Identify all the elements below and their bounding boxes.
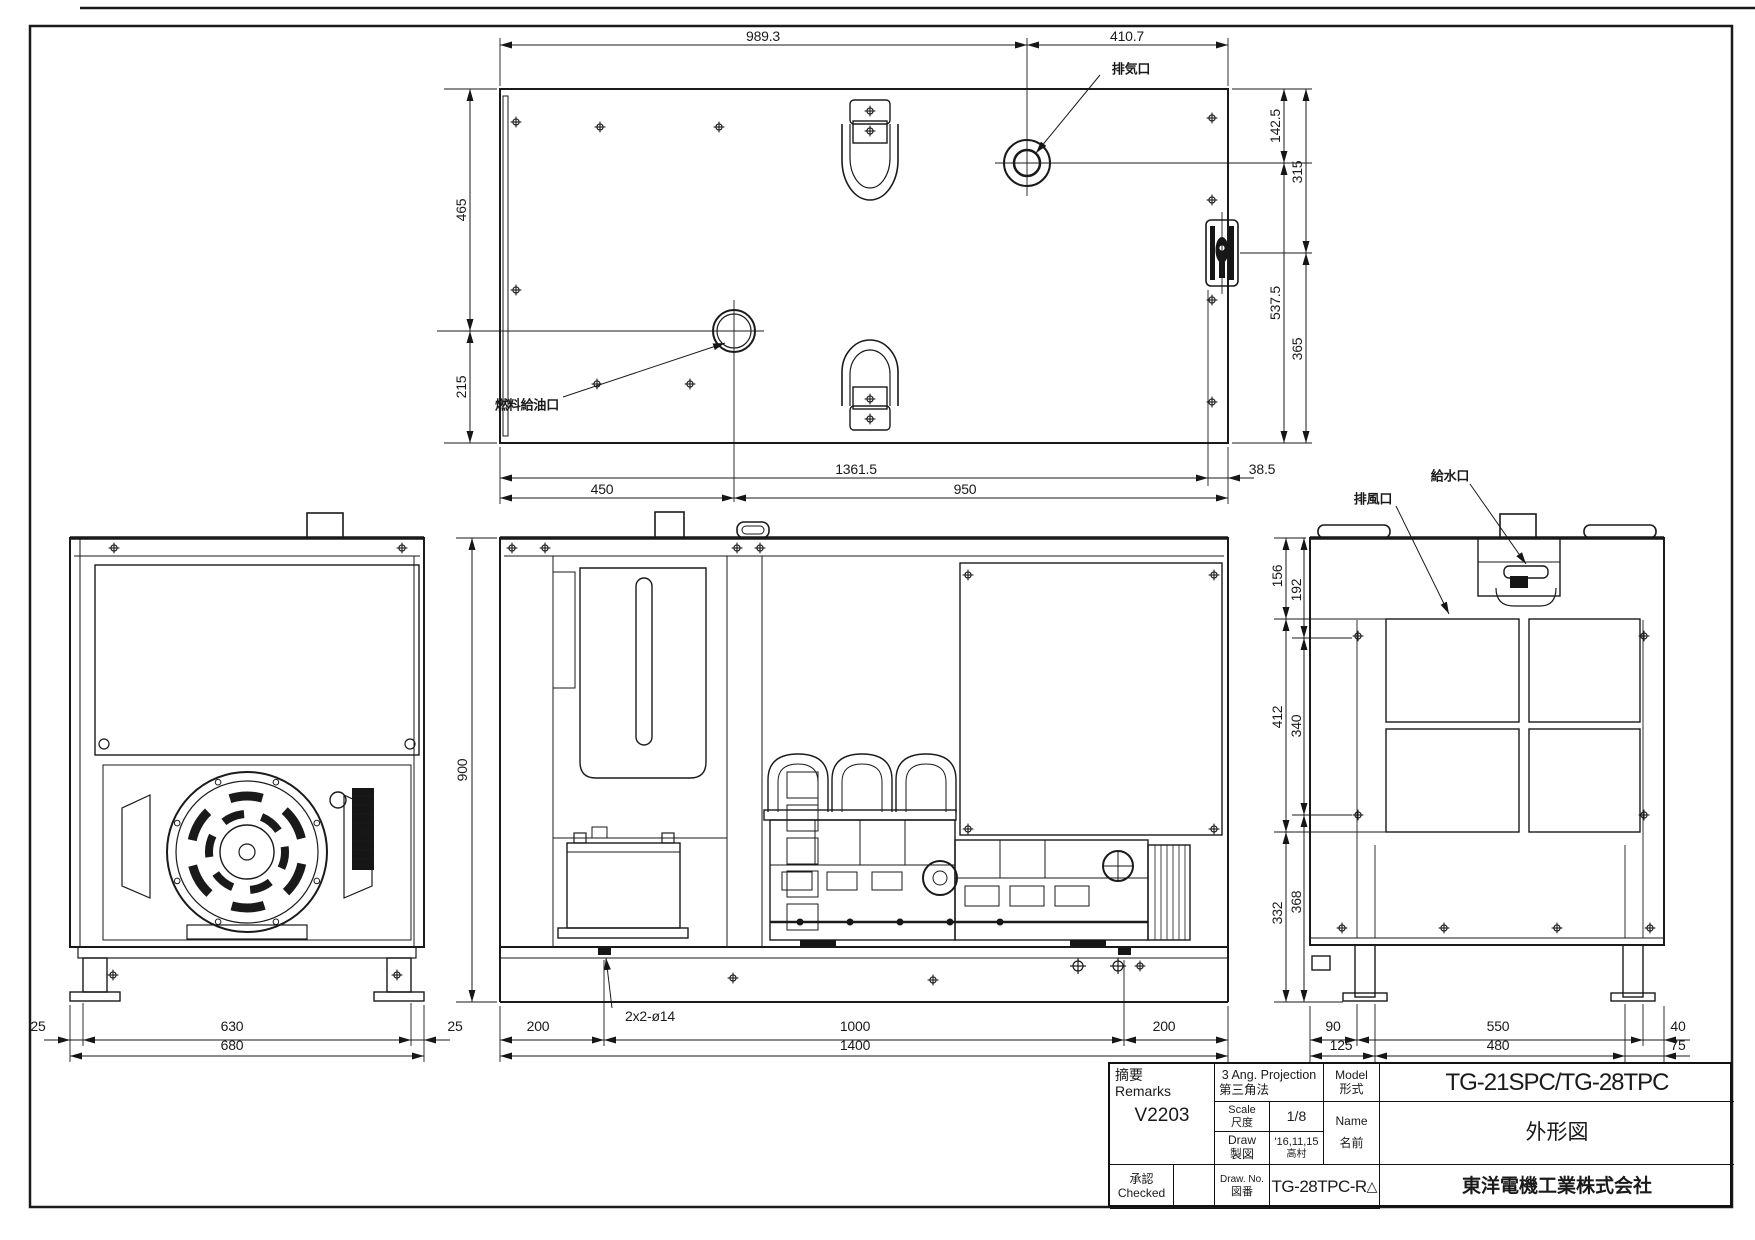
checked-label-en: Checked: [1118, 1187, 1165, 1201]
dim-front-25l: 25: [30, 1018, 45, 1034]
fuel-fill-port: [437, 300, 764, 502]
title-remarks-cell: 摘要 Remarks V2203: [1110, 1064, 1215, 1165]
dim-plan-450: 450: [591, 481, 614, 497]
dim-plan-1361: 1361.5: [835, 461, 877, 477]
name-label-en: Name: [1335, 1115, 1367, 1129]
drawno-label-jp: 図番: [1231, 1186, 1253, 1199]
title-blank-cell: [1174, 1165, 1215, 1209]
water-fill-recess: [1478, 538, 1560, 606]
projection-label-en: 3 Ang. Projection: [1222, 1068, 1317, 1082]
title-model-label-cell: Model 形式: [1324, 1064, 1380, 1102]
scale-label-en: Scale: [1228, 1104, 1256, 1117]
scale-value: 1/8: [1287, 1108, 1306, 1124]
scale-label-jp: 尺度: [1231, 1117, 1253, 1130]
dim-rear-368: 368: [1288, 891, 1304, 914]
draw-label-jp: 製図: [1230, 1148, 1254, 1162]
dim-plan-537: 537.5: [1267, 286, 1283, 320]
generator-fan: [167, 772, 327, 932]
dim-rear-192: 192: [1288, 579, 1304, 602]
label-exhaust-port: 排気口: [1112, 59, 1150, 78]
tank-door: [553, 568, 706, 778]
label-base-holes: 2x2-ø14: [625, 1008, 675, 1024]
title-name-value-cell: 外形図: [1380, 1102, 1734, 1165]
dim-rear-340: 340: [1288, 715, 1304, 738]
drawno-value: TG-28TPC-R: [1272, 1177, 1367, 1197]
drawing-linework: [0, 0, 1755, 1240]
dim-rear-90: 90: [1325, 1018, 1340, 1034]
title-drawno-value-cell: TG-28TPC-R △: [1270, 1165, 1380, 1209]
title-name-label-cell: Name 名前: [1324, 1102, 1380, 1165]
draw-label-en: Draw: [1228, 1134, 1256, 1148]
label-air-outlet: 排風口: [1354, 489, 1392, 508]
title-checked-cell: 承認 Checked: [1110, 1165, 1174, 1209]
dim-plan-950: 950: [954, 481, 977, 497]
side-view: [456, 512, 1228, 1062]
front-view: [44, 513, 450, 1062]
dim-front-630: 630: [221, 1018, 244, 1034]
title-scale-value-cell: 1/8: [1270, 1102, 1324, 1132]
dim-side-1000: 1000: [840, 1018, 870, 1034]
dim-plan-315: 315: [1289, 161, 1305, 184]
terminal-block: [352, 788, 374, 870]
title-draw-label-cell: Draw 製図: [1215, 1132, 1270, 1165]
dim-front-25r: 25: [447, 1018, 462, 1034]
remarks-value: V2203: [1135, 1105, 1190, 1127]
dim-side-200b: 200: [1153, 1018, 1176, 1034]
name-label-jp: 名前: [1339, 1137, 1363, 1151]
dim-plan-465: 465: [453, 199, 469, 222]
title-model-value-cell: TG-21SPC/TG-28TPC: [1380, 1064, 1734, 1102]
projection-label-jp: 第三角法: [1215, 1083, 1269, 1097]
title-scale-label-cell: Scale 尺度: [1215, 1102, 1270, 1132]
company-name: 東洋電機工業株式会社: [1462, 1176, 1652, 1198]
dim-rear-332: 332: [1269, 902, 1285, 925]
door-latch: [1206, 212, 1238, 294]
dim-side-1400: 1400: [840, 1037, 870, 1053]
service-panel: [960, 563, 1222, 835]
label-fuel-port: 燃料給油口: [495, 395, 559, 414]
dim-plan-385: 38.5: [1249, 461, 1275, 477]
battery: [558, 833, 688, 938]
title-company-cell: 東洋電機工業株式会社: [1380, 1165, 1734, 1209]
dim-rear-75: 75: [1670, 1037, 1685, 1053]
dim-plan-142: 142.5: [1267, 109, 1283, 143]
dim-rear-550: 550: [1487, 1018, 1510, 1034]
title-block: 摘要 Remarks V2203 承認 Checked 3 Ang. Proje…: [1108, 1062, 1732, 1207]
model-label-en: Model: [1335, 1069, 1368, 1083]
title-projection-cell: 3 Ang. Projection 第三角法: [1215, 1064, 1324, 1102]
draw-date: '16,11,15: [1274, 1136, 1318, 1149]
model-value: TG-21SPC/TG-28TPC: [1445, 1069, 1668, 1097]
dim-front-680: 680: [221, 1037, 244, 1053]
remarks-label-jp: 摘要: [1115, 1067, 1143, 1083]
engine: [764, 754, 1190, 946]
dim-rear-125: 125: [1330, 1037, 1353, 1053]
front-door-panel: [95, 565, 419, 755]
dim-rear-156: 156: [1269, 565, 1285, 588]
rear-view: [1274, 484, 1690, 1062]
dim-side-900: 900: [454, 759, 470, 782]
drawing-sheet: 989.3 410.7 465 215 142.5 315 537.5 365 …: [0, 0, 1755, 1240]
model-label-jp: 形式: [1339, 1083, 1363, 1097]
air-outlet-grille: [1386, 619, 1640, 832]
dim-plan-410: 410.7: [1110, 28, 1144, 44]
draw-author: 高村: [1287, 1149, 1307, 1161]
remarks-label-en: Remarks: [1115, 1083, 1171, 1099]
checked-label-jp: 承認: [1129, 1173, 1153, 1187]
top-view: [437, 38, 1312, 504]
dim-rear-412: 412: [1269, 706, 1285, 729]
title-draw-value-cell: '16,11,15 高村: [1270, 1132, 1324, 1165]
drawno-label-en: Draw. No.: [1220, 1174, 1264, 1186]
dim-plan-215: 215: [453, 376, 469, 399]
title-drawno-label-cell: Draw. No. 図番: [1215, 1165, 1270, 1209]
revision-triangle: △: [1367, 1178, 1378, 1194]
label-water-inlet: 給水口: [1431, 466, 1469, 485]
dim-plan-365: 365: [1289, 338, 1305, 361]
dim-side-200a: 200: [527, 1018, 550, 1034]
exhaust-port: [995, 38, 1312, 196]
dim-plan-989: 989.3: [746, 28, 780, 44]
dim-rear-40: 40: [1670, 1018, 1685, 1034]
dim-rear-480: 480: [1487, 1037, 1510, 1053]
drawing-title: 外形図: [1526, 1121, 1589, 1145]
